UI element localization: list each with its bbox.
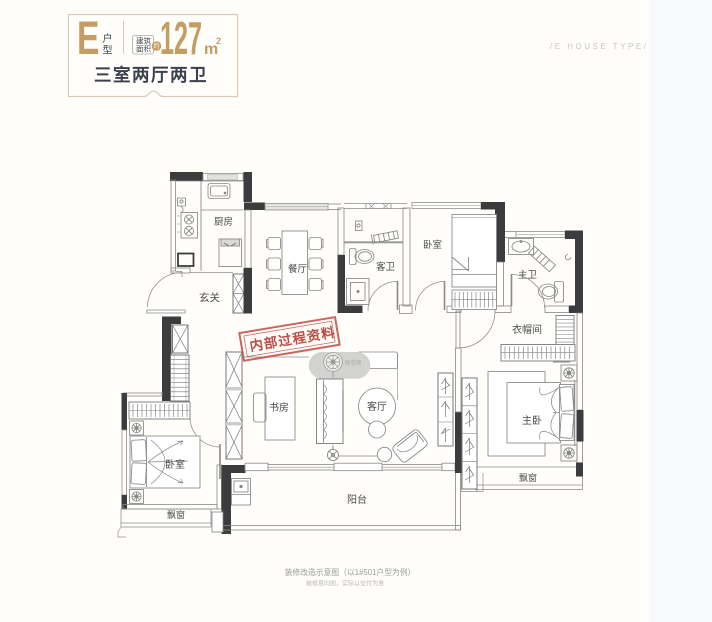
svg-text:2: 2 <box>216 36 221 46</box>
svg-text:餐厅: 餐厅 <box>288 263 308 275</box>
svg-text:客厅: 客厅 <box>367 400 387 413</box>
svg-text:/E HOUSE TYPE/: /E HOUSE TYPE/ <box>550 42 648 51</box>
svg-text:内部过程资料: 内部过程资料 <box>248 324 336 354</box>
svg-text:127: 127 <box>160 12 202 64</box>
svg-text:约: 约 <box>154 42 160 50</box>
svg-text:客卫: 客卫 <box>376 261 396 273</box>
svg-text:户: 户 <box>103 32 113 45</box>
svg-text:面积: 面积 <box>136 44 151 54</box>
svg-text:卧室: 卧室 <box>165 458 185 471</box>
svg-text:卧室: 卧室 <box>423 239 442 251</box>
svg-text:厨房: 厨房 <box>214 216 233 228</box>
svg-text:主卫: 主卫 <box>518 269 538 281</box>
svg-text:装修改造示意图（以1#501户型为例）: 装修改造示意图（以1#501户型为例） <box>285 567 416 577</box>
svg-text:三室两厅两卫: 三室两厅两卫 <box>94 65 208 85</box>
svg-text:玄关: 玄关 <box>199 291 220 304</box>
svg-text:衣帽间: 衣帽间 <box>512 323 542 336</box>
svg-text:晾衣架: 晾衣架 <box>345 359 362 367</box>
svg-text:E: E <box>77 11 100 64</box>
svg-text:飘窗: 飘窗 <box>167 509 185 520</box>
svg-text:型: 型 <box>103 44 113 57</box>
svg-text:主卧: 主卧 <box>522 414 542 427</box>
svg-text:书房: 书房 <box>269 401 289 414</box>
svg-text:飘窗: 飘窗 <box>519 472 537 483</box>
svg-text:装修意向图，实际以交付为准: 装修意向图，实际以交付为准 <box>306 580 384 588</box>
svg-text:阳台: 阳台 <box>347 493 367 506</box>
